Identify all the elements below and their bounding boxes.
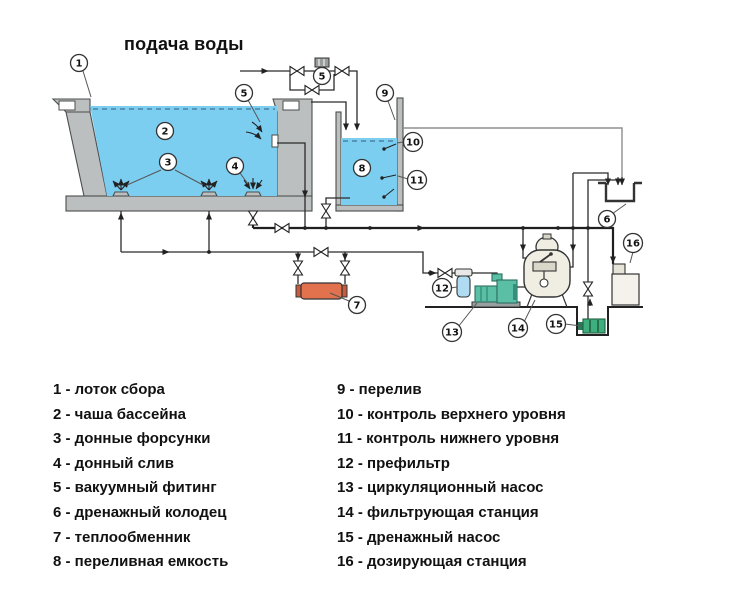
svg-text:14: 14 [511,324,525,335]
svg-text:9: 9 [382,89,389,100]
pool-water [90,106,277,196]
legend-item: 10 - контроль верхнего уровня [337,403,566,428]
svg-text:1: 1 [76,59,83,70]
fill-valve-icon: 5 [314,58,331,85]
legend-item: 16 - дозирующая станция [337,550,566,575]
legend-item: 4 - донный слив [53,452,228,477]
dosing-station [612,264,639,305]
drainage-well [598,183,642,201]
svg-text:3: 3 [165,158,172,169]
drainage-pump [578,319,605,333]
legend-item: 1 - лоток сбора [53,378,228,403]
pool-piping-diagram: подача воды [0,0,729,608]
circulation-pump [472,274,520,307]
callout-12: 12 [433,279,452,298]
legend-item: 2 - чаша бассейна [53,403,228,428]
legend-item: 3 - донные форсунки [53,427,228,452]
legend-item: 11 - контроль нижнего уровня [337,427,566,452]
legend-item: 14 - фильтрующая станция [337,501,566,526]
svg-text:4: 4 [232,162,239,173]
svg-text:2: 2 [162,127,169,138]
callout-13: 13 [443,323,462,342]
legend-item: 9 - перелив [337,378,566,403]
callout-4: 4 [227,158,244,175]
callout-16: 16 [624,234,643,253]
legend-item: 12 - префильтр [337,452,566,477]
svg-text:15: 15 [549,320,563,331]
legend-column-left: 1 - лоток сбора 2 - чаша бассейна 3 - до… [53,378,228,575]
callout-11: 11 [408,171,427,190]
fill-valve-label: 5 [319,72,326,83]
svg-text:10: 10 [406,138,420,149]
svg-text:8: 8 [359,164,366,175]
legend-item: 8 - переливная емкость [53,550,228,575]
svg-text:11: 11 [410,176,424,187]
svg-text:6: 6 [604,215,611,226]
callout-10: 10 [404,133,423,152]
legend-item: 6 - дренажный колодец [53,501,228,526]
callout-5: 5 [236,85,253,102]
callout-8: 8 [354,160,371,177]
callout-6: 6 [599,211,616,228]
callout-2: 2 [157,123,174,140]
multiport-valve-icon [533,262,556,271]
equipment [425,234,643,335]
callout-3: 3 [160,154,177,171]
legend-column-right: 9 - перелив 10 - контроль верхнего уровн… [337,378,566,575]
callout-1: 1 [71,55,88,72]
svg-text:7: 7 [354,301,361,312]
callout-14: 14 [509,319,528,338]
callout-15: 15 [547,315,566,334]
svg-text:12: 12 [435,284,449,295]
callout-7: 7 [349,297,366,314]
svg-text:13: 13 [445,328,459,339]
filter-station [524,234,570,307]
legend-item: 15 - дренажный насос [337,526,566,551]
schematic-drawing: 5 [0,0,729,375]
legend-item: 13 - циркуляционный насос [337,476,566,501]
prefilter [455,269,472,297]
legend-item: 5 - вакуумный фитинг [53,476,228,501]
svg-text:5: 5 [241,89,248,100]
svg-text:16: 16 [626,239,640,250]
callout-9: 9 [377,85,394,102]
legend-item: 7 - теплообменник [53,526,228,551]
pool-basin [53,99,312,211]
